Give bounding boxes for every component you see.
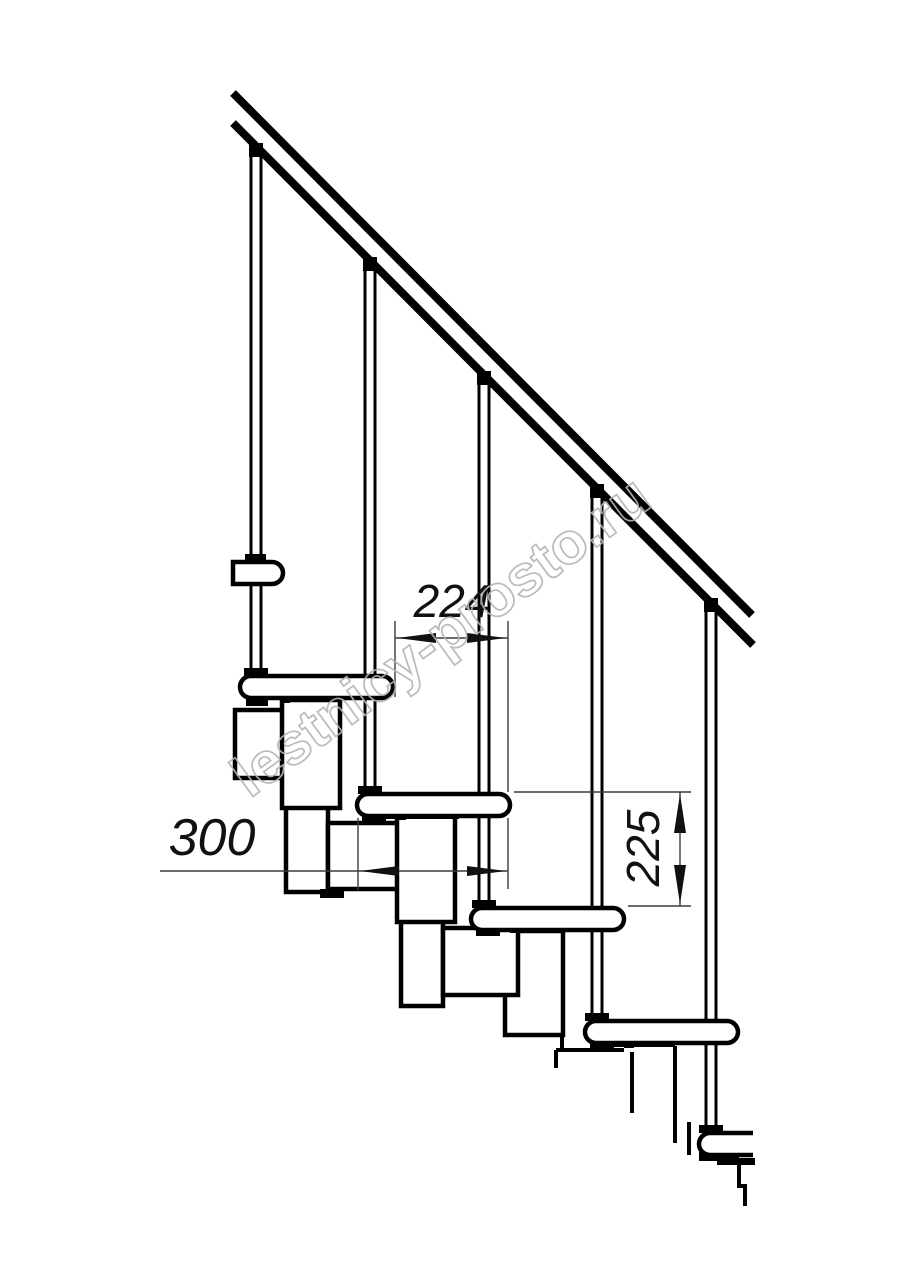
tread [471, 908, 624, 930]
module-box [328, 823, 403, 889]
dimension-label-tread-depth: 300 [169, 809, 256, 867]
staircase-drawing: 224 300 225 lestnicy-prosto.ru [0, 0, 914, 1280]
module-box [443, 928, 518, 995]
bracket [320, 889, 344, 898]
baluster-collar [472, 900, 496, 908]
baluster-collar [699, 1125, 723, 1133]
arrowhead [674, 865, 686, 904]
baluster [706, 606, 716, 1133]
baluster-collar [245, 554, 266, 562]
bracket [717, 1158, 755, 1165]
baluster-collar [244, 668, 268, 676]
tread [585, 1021, 738, 1043]
module-box [397, 814, 455, 922]
arrowhead [674, 794, 686, 833]
drawing-canvas: 224 300 225 lestnicy-prosto.ru [0, 0, 914, 1280]
tread-edge-on [233, 562, 283, 584]
arrowhead [467, 866, 506, 876]
tread [357, 794, 510, 816]
baluster-collar [585, 1013, 609, 1021]
watermark-text: lestnicy-prosto.ru [219, 463, 662, 809]
tread-partial [699, 1133, 753, 1155]
module-partial-line [739, 1164, 745, 1206]
handrail-top-line [233, 93, 752, 615]
baluster-collar [358, 786, 382, 794]
baluster [251, 150, 261, 676]
dimension-label-step-rise: 225 [617, 809, 669, 887]
baluster [592, 492, 602, 1021]
